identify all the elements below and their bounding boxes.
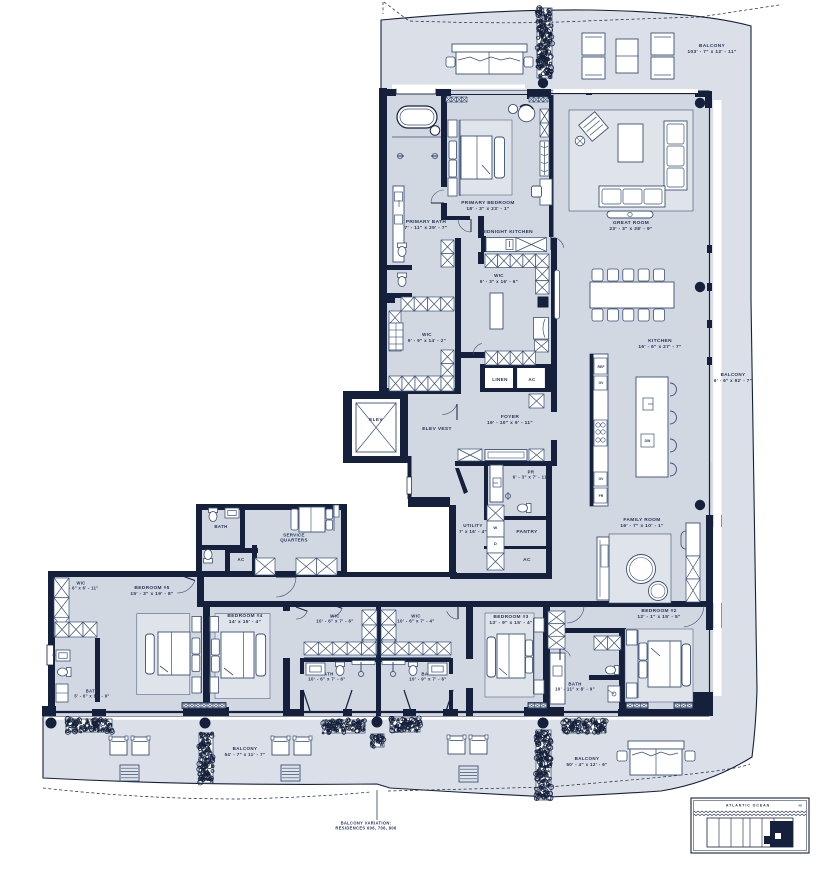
- svg-text:50' - 4" x 12' - 6": 50' - 4" x 12' - 6": [566, 762, 607, 767]
- svg-text:10' - 11" x 8' - 9": 10' - 11" x 8' - 9": [555, 687, 595, 692]
- svg-text:ELEV VEST: ELEV VEST: [422, 426, 452, 432]
- svg-text:19' - 10" x 9' - 11": 19' - 10" x 9' - 11": [487, 420, 533, 426]
- svg-text:WIC: WIC: [494, 273, 504, 278]
- svg-text:OV: OV: [598, 477, 604, 481]
- svg-text:GREAT ROOM: GREAT ROOM: [613, 220, 649, 226]
- svg-text:QUARTERS: QUARTERS: [280, 538, 307, 543]
- svg-text:10' - 9" x 7' - 6": 10' - 9" x 7' - 6": [409, 677, 446, 682]
- svg-text:WIC: WIC: [422, 332, 432, 337]
- svg-text:PRIMARY BEDROOM: PRIMARY BEDROOM: [461, 200, 515, 206]
- svg-text:FAMILY ROOM: FAMILY ROOM: [623, 517, 660, 523]
- svg-text:5' - 6" x 10' - 9": 5' - 6" x 10' - 9": [74, 694, 109, 699]
- svg-text:10' - 6" x 7' - 6": 10' - 6" x 7' - 6": [308, 677, 345, 682]
- svg-text:49: 49: [798, 804, 802, 808]
- svg-text:AC: AC: [523, 557, 531, 563]
- svg-text:18' - 3" x 23' - 1": 18' - 3" x 23' - 1": [466, 206, 509, 212]
- svg-text:UTILITY: UTILITY: [463, 523, 482, 528]
- svg-text:BALCONY: BALCONY: [233, 746, 258, 751]
- svg-text:BEDROOM #5: BEDROOM #5: [134, 585, 169, 591]
- svg-text:PANTRY: PANTRY: [516, 529, 538, 535]
- svg-text:BALCONY: BALCONY: [721, 372, 746, 377]
- svg-text:W: W: [493, 525, 497, 530]
- svg-text:BEDROOM #3: BEDROOM #3: [493, 614, 528, 620]
- svg-text:12' - 1" x 15' - 5": 12' - 1" x 15' - 5": [637, 614, 680, 620]
- svg-text:BEDROOM #4: BEDROOM #4: [227, 613, 262, 619]
- svg-text:13' - 9" x 15' - 4": 13' - 9" x 15' - 4": [489, 620, 532, 626]
- svg-text:KITCHEN: KITCHEN: [648, 338, 672, 344]
- svg-text:PR: PR: [528, 469, 535, 474]
- svg-text:REF: REF: [597, 365, 604, 369]
- svg-text:9' - 3" x 16' - 6": 9' - 3" x 16' - 6": [480, 279, 518, 284]
- svg-text:ELEV: ELEV: [369, 417, 383, 422]
- svg-text:10' - 6" x 7' - 6": 10' - 6" x 7' - 6": [316, 619, 353, 624]
- svg-text:14' x 15' - 4": 14' x 15' - 4": [229, 619, 261, 625]
- svg-text:6' - 3" x 7' - 11": 6' - 3" x 7' - 11": [513, 475, 550, 480]
- svg-text:15' - 3" x 19' - 8": 15' - 3" x 19' - 8": [130, 591, 173, 597]
- svg-text:BALCONY: BALCONY: [699, 43, 726, 49]
- svg-text:9' - 9" x 14' - 2": 9' - 9" x 14' - 2": [408, 338, 446, 343]
- svg-text:16' - 7" x 10' - 1": 16' - 7" x 10' - 1": [620, 523, 663, 529]
- svg-text:BATH: BATH: [214, 524, 227, 529]
- svg-text:D: D: [494, 541, 497, 546]
- svg-text:AC: AC: [238, 557, 245, 562]
- svg-text:DW: DW: [645, 439, 652, 443]
- svg-text:MIDNIGHT KITCHEN: MIDNIGHT KITCHEN: [481, 229, 533, 235]
- svg-text:OV: OV: [598, 381, 604, 385]
- svg-text:7' x 16' - 4": 7' x 16' - 4": [459, 529, 487, 534]
- svg-text:RESIDENCES 606, 706, 806: RESIDENCES 606, 706, 806: [335, 826, 397, 831]
- svg-text:LINEN: LINEN: [492, 377, 508, 382]
- svg-text:23' - 3" x 38' - 9": 23' - 3" x 38' - 9": [609, 226, 652, 232]
- svg-text:AC: AC: [528, 377, 536, 382]
- svg-text:WIC: WIC: [411, 613, 421, 618]
- svg-text:16' - 6" x 27' - 7": 16' - 6" x 27' - 7": [638, 344, 681, 350]
- svg-text:BATH: BATH: [568, 681, 581, 686]
- svg-text:103' - 7" x 12' - 11": 103' - 7" x 12' - 11": [687, 49, 736, 55]
- svg-text:BEDROOM #2: BEDROOM #2: [641, 608, 676, 614]
- svg-text:FOYER: FOYER: [501, 414, 519, 420]
- svg-text:ATLANTIC OCEAN: ATLANTIC OCEAN: [726, 804, 770, 808]
- svg-text:BALCONY: BALCONY: [575, 756, 600, 761]
- svg-text:PRIMARY BATH: PRIMARY BATH: [406, 219, 447, 225]
- svg-text:SERVICE: SERVICE: [283, 532, 305, 537]
- svg-text:FR: FR: [599, 494, 604, 498]
- svg-text:10' - 6" x 7' - 4": 10' - 6" x 7' - 4": [397, 619, 434, 624]
- svg-text:54' - 7" x 11' - 7": 54' - 7" x 11' - 7": [225, 752, 266, 757]
- svg-text:6' - 6" x 92' - 7": 6' - 6" x 92' - 7": [714, 378, 752, 383]
- svg-text:7' - 11" x 29' - 7": 7' - 11" x 29' - 7": [404, 225, 447, 231]
